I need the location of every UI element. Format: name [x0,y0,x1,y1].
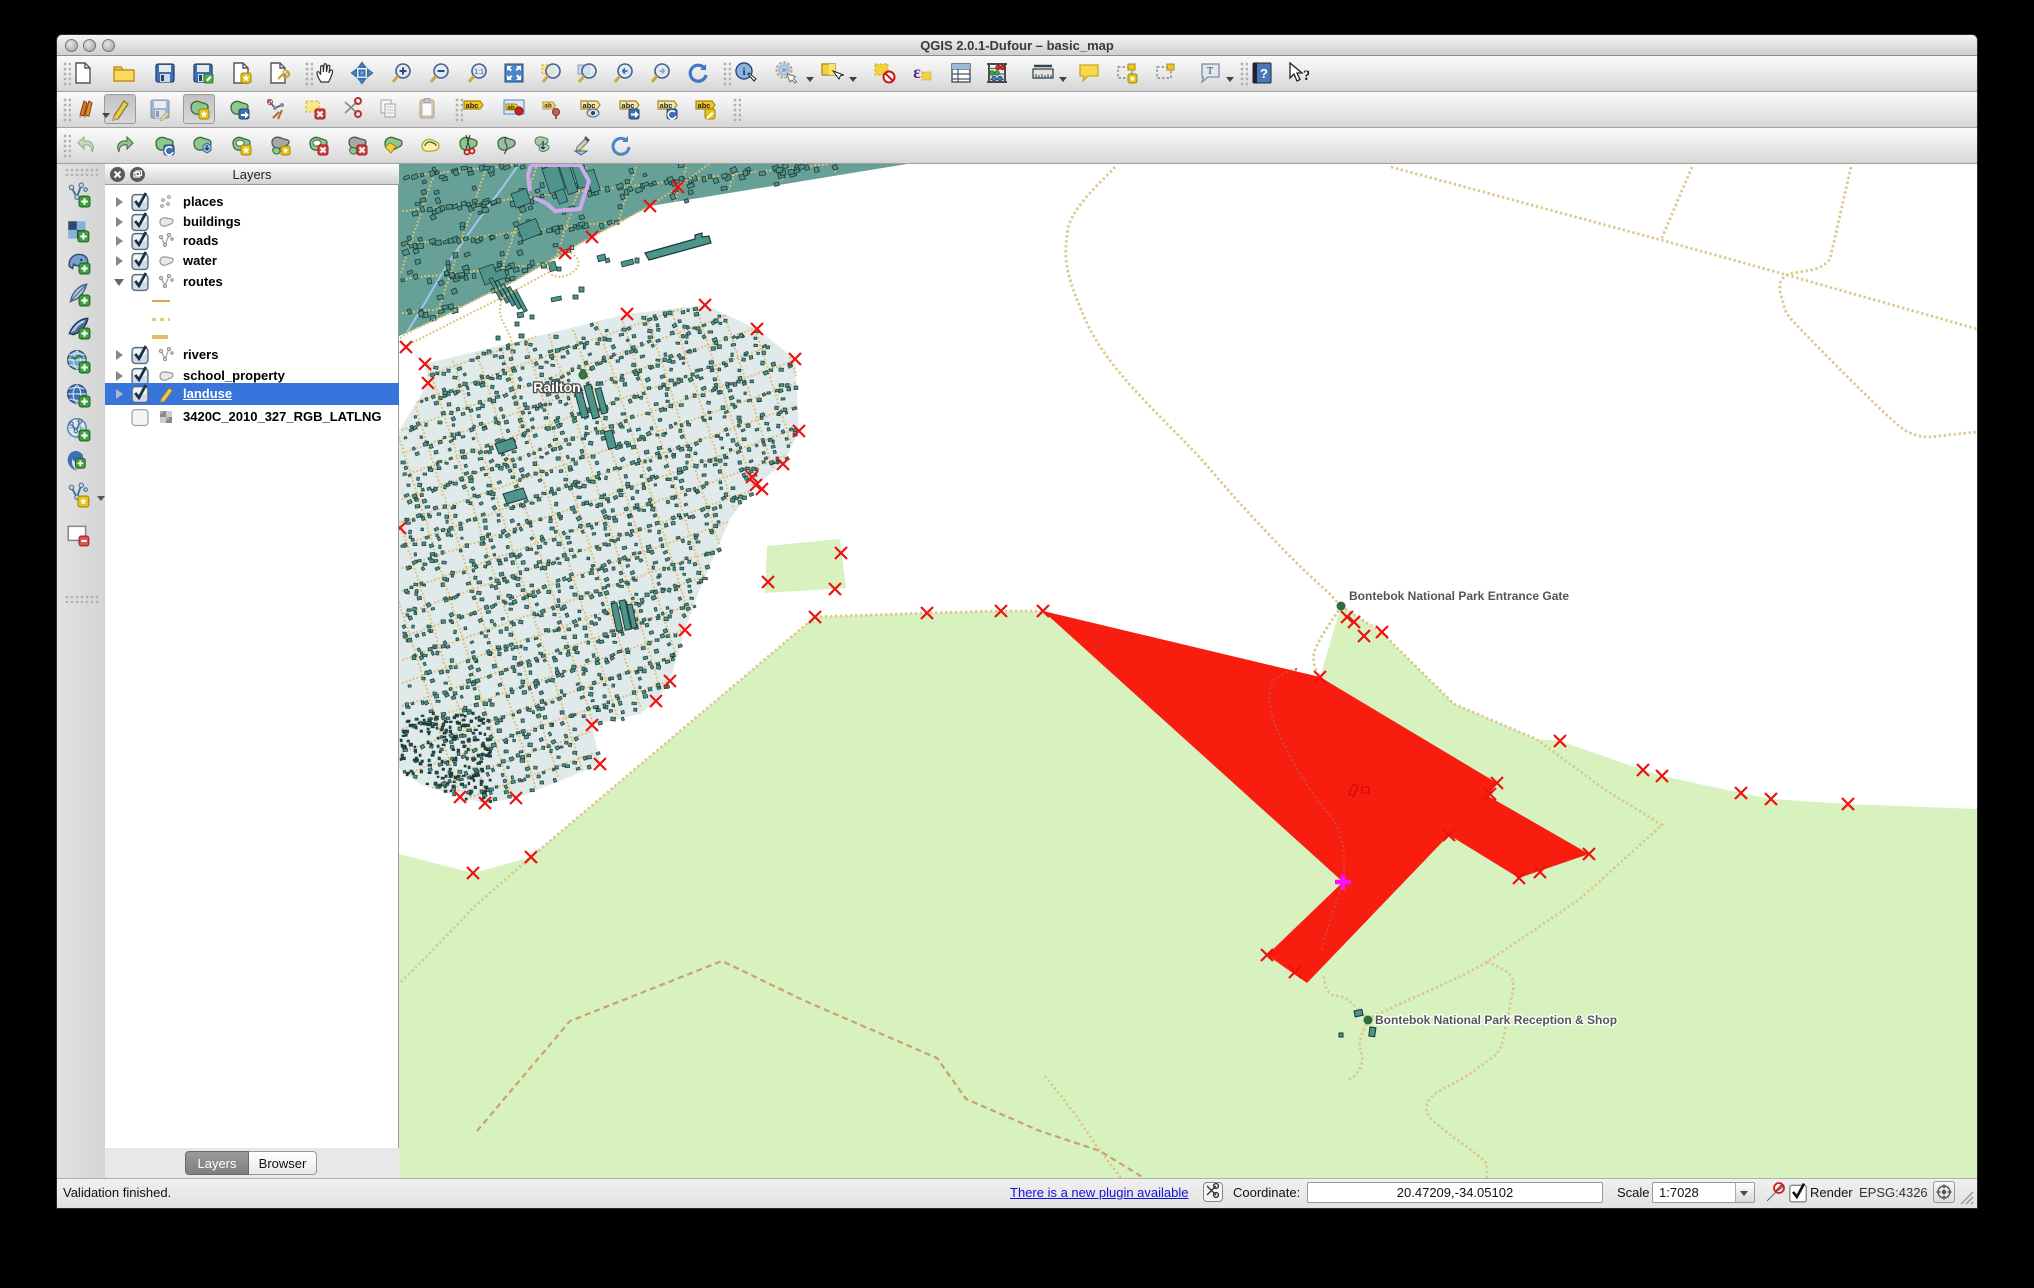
svg-text:T: T [1207,66,1213,77]
svg-text:Bontebok National Park Entranc: Bontebok National Park Entrance Gate [1349,589,1569,603]
svg-text:i: i [742,66,745,78]
svg-text:ε: ε [913,62,921,82]
svg-text:?: ? [1260,66,1268,81]
svg-text:ab: ab [507,105,515,112]
svg-text:1:1: 1:1 [474,69,484,76]
svg-text:abc: abc [466,101,479,110]
svg-text:Railton: Railton [533,379,580,395]
svg-text:ab: ab [544,103,552,110]
svg-text:Bontebok National Park Recepti: Bontebok National Park Reception & Shop [1375,1013,1617,1027]
svg-text:?: ? [1303,68,1309,84]
